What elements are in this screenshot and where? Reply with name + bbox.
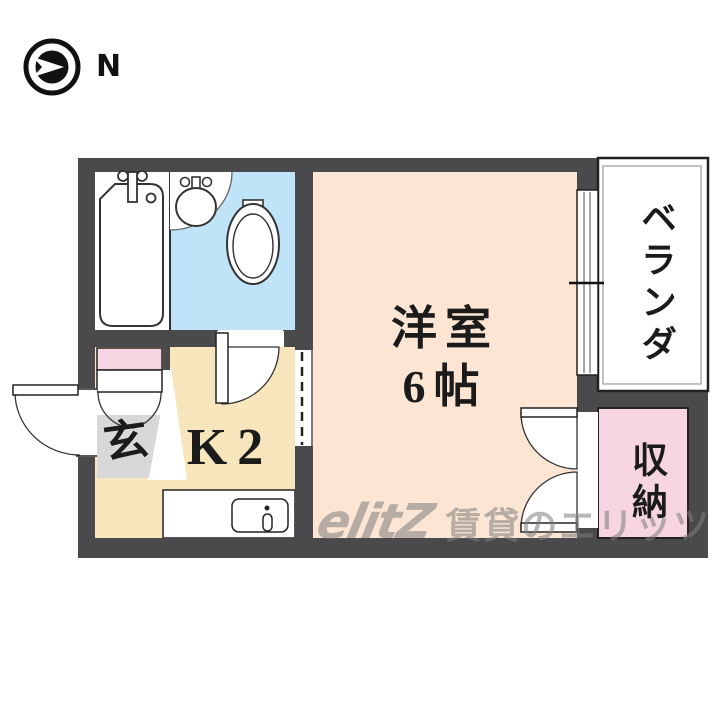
wall-right-mid [577, 375, 598, 412]
faucet-knob-icon [181, 178, 190, 187]
drain-icon [263, 514, 272, 531]
faucet-dot-icon [265, 506, 270, 511]
door-swing-arc [15, 392, 80, 455]
entrance-label: 玄 [95, 416, 157, 467]
shoe-cabinet [97, 348, 162, 370]
faucet-knob-icon [203, 178, 212, 187]
wall-stub-entrance [162, 330, 170, 370]
wall-left-upper [78, 158, 95, 388]
main-room-floor [313, 170, 577, 538]
kitchen-room-opening [295, 350, 313, 446]
wall-kitchen-room-upper [295, 172, 313, 350]
kitchen-sink-icon [232, 499, 288, 532]
floor-plan-image: N 洋室 6帖 K2 玄 ベランダ 収納 elitZ 賃貸のエリッツ [0, 0, 720, 720]
entrance-door-swing-icon [13, 385, 97, 456]
opening-gap [295, 350, 313, 446]
wall-washroom-bottom-left [95, 330, 218, 347]
floor-plan-drawing [0, 0, 720, 720]
main-room-name: 洋室 [313, 306, 577, 352]
door-leaf [216, 333, 228, 403]
wall-kitchen-room-lower [295, 445, 313, 538]
compass-icon [26, 41, 78, 93]
wall-top [78, 158, 598, 172]
wall-veranda-storage [598, 391, 708, 408]
kitchen-label: K2 [170, 422, 290, 474]
door-gap [76, 389, 97, 456]
faucet-knob-icon [118, 171, 128, 181]
watermark-logo: elitZ [313, 498, 436, 546]
kitchen-counter [163, 490, 295, 538]
watermark: elitZ 賃貸のエリッツ [318, 498, 711, 546]
faucet-knob-icon [137, 171, 147, 181]
veranda-label: ベランダ [628, 178, 674, 388]
door-leaf [13, 385, 78, 395]
compass-north-label: N [96, 52, 121, 82]
drain-icon [147, 194, 156, 203]
washbasin-icon [176, 188, 216, 226]
faucet-spout-icon [128, 172, 137, 202]
main-room-size: 6帖 [313, 364, 577, 410]
wall-washroom-bottom-right [283, 330, 313, 347]
bathtub-icon [100, 184, 163, 326]
watermark-text: 賃貸のエリッツ [445, 509, 711, 545]
wall-right-upper [577, 158, 598, 190]
shoe-cabinet-counter [97, 370, 162, 392]
toilet-icon [227, 204, 279, 284]
